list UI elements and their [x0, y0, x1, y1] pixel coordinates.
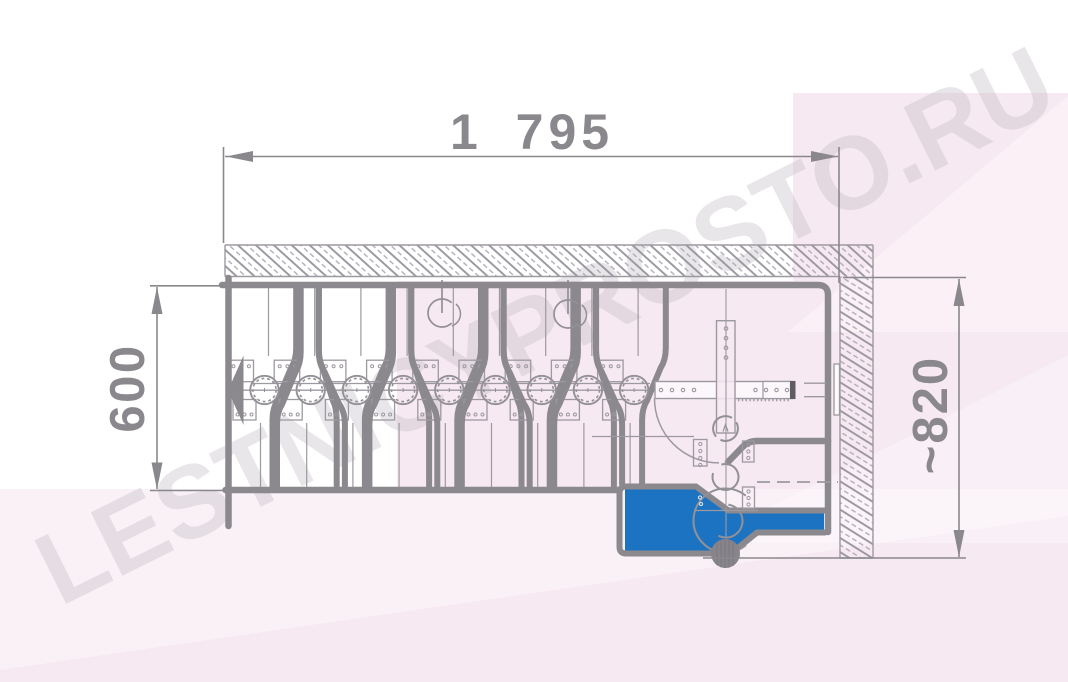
svg-text:~820: ~820	[904, 356, 958, 474]
svg-text:1 795: 1 795	[450, 104, 614, 160]
svg-text:600: 600	[101, 343, 155, 432]
